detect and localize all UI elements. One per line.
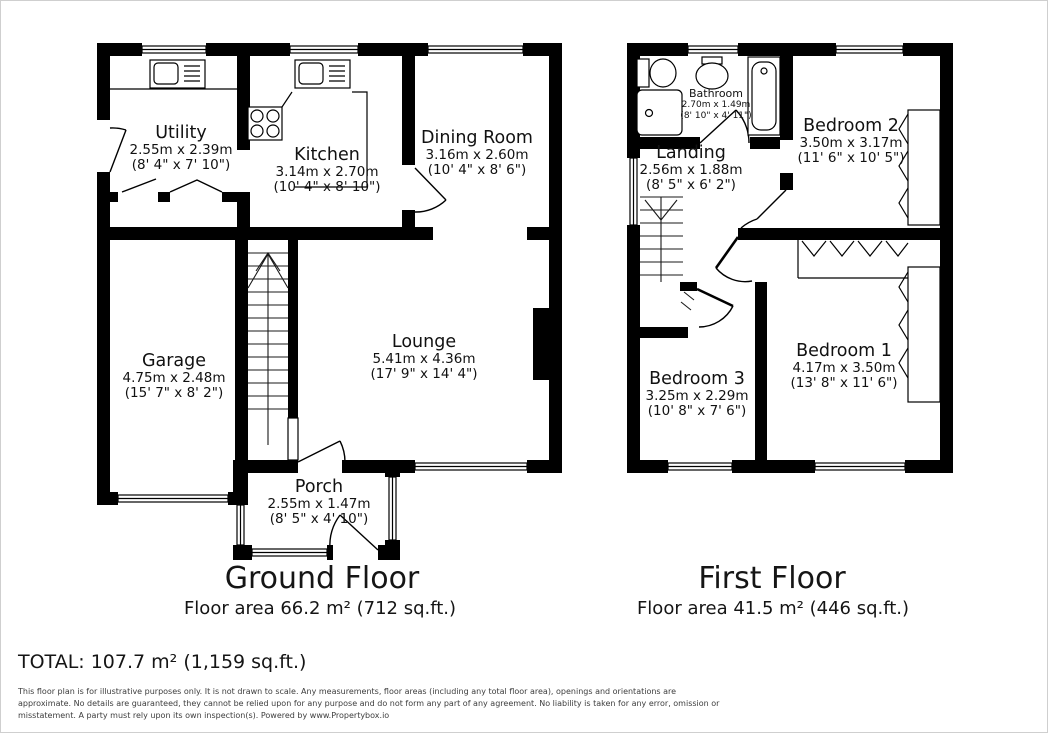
room-name: Dining Room: [421, 129, 533, 148]
room-name: Garage: [123, 352, 226, 371]
bedroom2-window-icon: [836, 43, 903, 56]
room-name: Bedroom 2: [797, 117, 904, 136]
shower-icon: [637, 90, 682, 135]
disclaimer-line: approximate. No details are guaranteed, …: [18, 698, 719, 710]
room-label-bedroom-2: Bedroom 2 3.50m x 3.17m (11' 6" x 10' 5"…: [797, 117, 904, 165]
utility-window-icon: [142, 43, 206, 56]
first-floor-title: First Floor: [698, 562, 845, 596]
room-dim-imperial: (8' 4" x 7' 10"): [130, 158, 233, 173]
room-dim-metric: 3.14m x 2.70m: [273, 165, 380, 180]
toilet-icon: [637, 59, 676, 87]
bedroom3-door-icon: [697, 289, 733, 327]
room-dim-metric: 2.55m x 1.47m: [268, 497, 371, 512]
room-dim-imperial: (10' 4" x 8' 6"): [421, 163, 533, 178]
first-staircase-icon: [640, 197, 694, 310]
basin-icon: [696, 57, 728, 89]
disclaimer-text: This floor plan is for illustrative purp…: [18, 686, 719, 722]
hall-porch-door-icon: [298, 441, 345, 462]
room-name: Porch: [268, 478, 371, 497]
kitchen-window-icon: [290, 43, 358, 56]
bedroom2-door-icon: [741, 190, 786, 228]
room-label-bathroom: Bathroom 2.70m x 1.49m (8' 10" x 4' 11"): [680, 88, 751, 121]
bedroom1-door-icon: [716, 237, 752, 282]
porch-front-window-icon: [252, 545, 327, 560]
room-label-bedroom-1: Bedroom 1 4.17m x 3.50m (13' 8" x 11' 6"…: [790, 342, 897, 390]
bathtub-icon: [748, 57, 780, 135]
room-label-utility: Utility 2.55m x 2.39m (8' 4" x 7' 10"): [130, 124, 233, 172]
room-dim-metric: 3.16m x 2.60m: [421, 148, 533, 163]
utility-sink-icon: [110, 60, 237, 89]
room-label-lounge: Lounge 5.41m x 4.36m (17' 9" x 14' 4"): [370, 333, 477, 381]
landing-window-icon: [627, 158, 640, 225]
disclaimer-line: misstatement. A party must rely upon its…: [18, 710, 719, 722]
room-name: Landing: [640, 144, 743, 163]
room-name: Lounge: [370, 333, 477, 352]
utility-internal-doors-icon: [122, 179, 222, 192]
garage-window-icon: [118, 492, 228, 505]
room-dim-metric: 3.25m x 2.29m: [646, 389, 749, 404]
utility-external-door-icon: [110, 128, 126, 172]
room-dim-imperial: (8' 5" x 4' 10"): [268, 512, 371, 527]
lounge-window-icon: [415, 460, 527, 473]
room-dim-imperial: (13' 8" x 11' 6"): [790, 376, 897, 391]
room-label-porch: Porch 2.55m x 1.47m (8' 5" x 4' 10"): [268, 478, 371, 526]
first-floor-area: Floor area 41.5 m² (446 sq.ft.): [637, 598, 909, 619]
room-name: Bedroom 1: [790, 342, 897, 361]
room-dim-metric: 4.75m x 2.48m: [123, 371, 226, 386]
room-name: Bedroom 3: [646, 370, 749, 389]
bedroom3-window-icon: [668, 460, 732, 473]
kitchen-sink-icon: [295, 60, 350, 88]
room-dim-metric: 4.17m x 3.50m: [790, 361, 897, 376]
room-label-landing: Landing 2.56m x 1.88m (8' 5" x 6' 2"): [640, 144, 743, 192]
room-dim-metric: 2.70m x 1.49m: [680, 100, 751, 111]
room-dim-metric: 2.56m x 1.88m: [640, 163, 743, 178]
room-dim-metric: 5.41m x 4.36m: [370, 352, 477, 367]
disclaimer-line: This floor plan is for illustrative purp…: [18, 686, 719, 698]
room-label-garage: Garage 4.75m x 2.48m (15' 7" x 8' 2"): [123, 352, 226, 400]
room-name: Kitchen: [273, 146, 380, 165]
bathroom-window-icon: [688, 43, 738, 56]
bedroom2-wardrobe-icon: [899, 110, 940, 225]
room-dim-imperial: (10' 8" x 7' 6"): [646, 404, 749, 419]
chimney-breast: [533, 308, 562, 380]
room-name: Bathroom: [680, 88, 751, 100]
total-area: TOTAL: 107.7 m² (1,159 sq.ft.): [18, 651, 306, 673]
dining-window-icon: [428, 43, 523, 56]
room-dim-imperial: (10' 4" x 8' 10"): [273, 180, 380, 195]
room-label-dining-room: Dining Room 3.16m x 2.60m (10' 4" x 8' 6…: [421, 129, 533, 177]
porch-right-window-icon: [385, 477, 400, 540]
bedroom1-window-icon: [815, 460, 905, 473]
porch-left-window-icon: [233, 505, 248, 545]
room-dim-imperial: (8' 10" x 4' 11"): [680, 111, 751, 122]
room-label-bedroom-3: Bedroom 3 3.25m x 2.29m (10' 8" x 7' 6"): [646, 370, 749, 418]
room-dim-imperial: (17' 9" x 14' 4"): [370, 367, 477, 382]
ground-floor-area: Floor area 66.2 m² (712 sq.ft.): [184, 598, 456, 619]
room-dim-metric: 2.55m x 2.39m: [130, 143, 233, 158]
hob-icon: [248, 107, 282, 140]
room-dim-imperial: (11' 6" x 10' 5"): [797, 151, 904, 166]
room-label-kitchen: Kitchen 3.14m x 2.70m (10' 4" x 8' 10"): [273, 146, 380, 194]
ground-floor-title: Ground Floor: [225, 562, 420, 596]
room-dim-imperial: (15' 7" x 8' 2"): [123, 386, 226, 401]
room-name: Utility: [130, 124, 233, 143]
room-dim-imperial: (8' 5" x 6' 2"): [640, 178, 743, 193]
room-dim-metric: 3.50m x 3.17m: [797, 136, 904, 151]
